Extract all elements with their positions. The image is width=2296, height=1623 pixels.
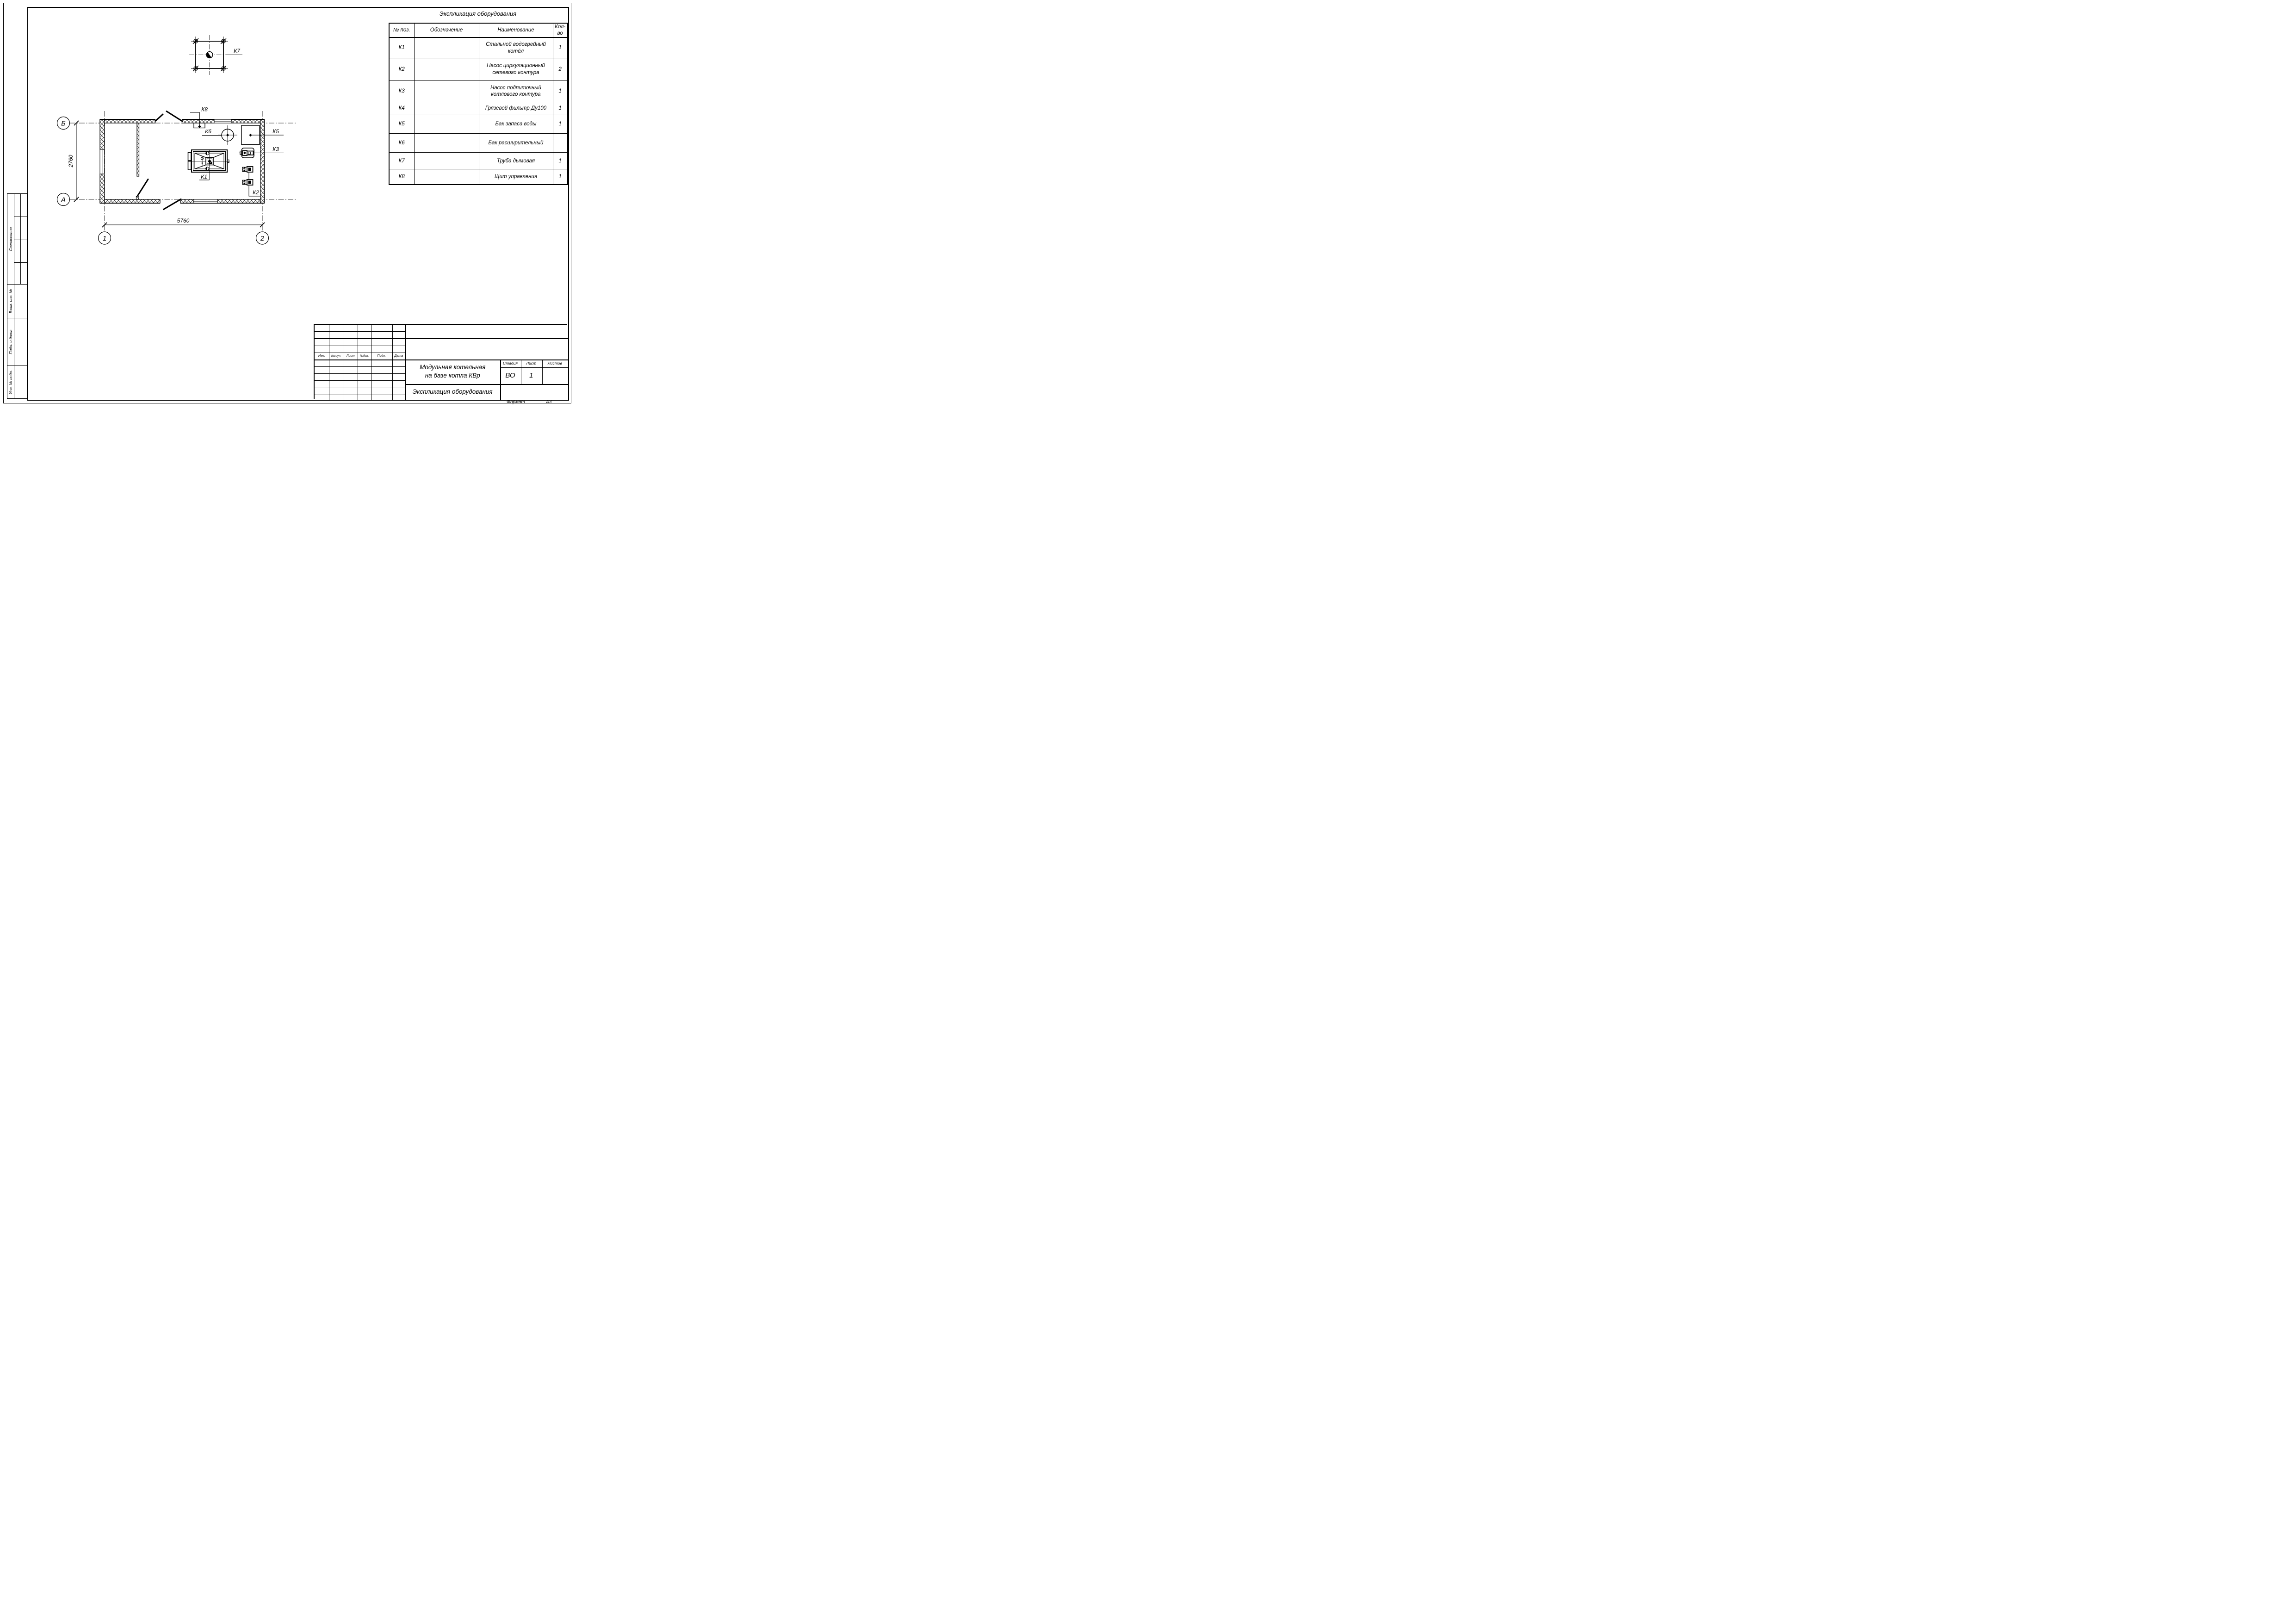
boiler-k1	[188, 150, 230, 180]
door-leaves	[138, 112, 183, 210]
cell-designation	[414, 58, 479, 81]
label-k5: К5	[272, 128, 279, 135]
stamp-inv-podl-label-cell: Инв. № подл.	[7, 366, 14, 398]
stamp-podp-data: Подп. и дата	[7, 318, 27, 366]
label-k8: К8	[201, 106, 208, 113]
sheets-value	[542, 367, 568, 384]
chimney-detail	[189, 35, 242, 75]
drawing-sheet: К7	[0, 0, 574, 406]
cell-qty: 2	[553, 58, 568, 81]
cell-pos: К8	[389, 169, 414, 185]
format-label: Формат	[507, 400, 525, 405]
table-row: К5 Бак запаса воды 1	[389, 114, 568, 134]
cell-name: Труба дымовая	[479, 153, 553, 169]
cell-name: Насос циркуляционный сетевого контура	[479, 58, 553, 81]
table-row: К7 Труба дымовая 1	[389, 153, 568, 169]
door-leaf-top-left	[156, 114, 163, 121]
cell-qty: 1	[553, 81, 568, 102]
cell-qty	[553, 134, 568, 153]
cell-designation	[414, 134, 479, 153]
table-row: К1 Стальной водогрейный котёл 1	[389, 37, 568, 58]
axis-number-1: 1	[103, 235, 106, 242]
stage-label: Стадия	[500, 359, 521, 368]
cell-designation	[414, 37, 479, 58]
cell-name: Грязевой фильтр Ду100	[479, 102, 553, 114]
cell-qty: 1	[553, 153, 568, 169]
stamp-podp-data-label: Подп. и дата	[8, 329, 13, 354]
table-row: К4 Грязевой фильтр Ду100 1	[389, 102, 568, 114]
label-k1: К1	[201, 173, 207, 180]
equipment-table-title: Экспликация оборудования	[389, 10, 567, 17]
cell-name: Бак запаса воды	[479, 114, 553, 134]
sheet-label: Лист	[521, 359, 542, 368]
cell-pos: К7	[389, 153, 414, 169]
rev-header-podp: Подп.	[371, 353, 392, 359]
project-name-line2: на базе котла КВр	[425, 372, 480, 380]
table-row: К6 Бак расширительный	[389, 134, 568, 153]
stamp-inv-podl: Инв. № подл.	[7, 365, 27, 399]
rev-header-izm: Изм.	[315, 353, 329, 359]
pump-k2-upper	[242, 167, 253, 172]
pump-k2-lower	[242, 180, 253, 185]
axis-letter-a: А	[61, 196, 66, 204]
cell-name: Бак расширительный	[479, 134, 553, 153]
cell-qty: 1	[553, 37, 568, 58]
label-k7: К7	[234, 48, 241, 54]
dimension-2760	[74, 121, 79, 202]
boiler-burner-door-icon	[188, 153, 192, 170]
cell-qty: 1	[553, 169, 568, 185]
cell-designation	[414, 169, 479, 185]
dim-text-2760: 2760	[68, 155, 74, 167]
table-row: К2 Насос циркуляционный сетевого контура…	[389, 58, 568, 81]
label-k6: К6	[205, 128, 211, 135]
cell-designation	[414, 114, 479, 134]
col-header-pos: № поз.	[389, 23, 414, 37]
cell-name: Стальной водогрейный котёл	[479, 37, 553, 58]
table-row: К3 Насос подпиточный котлового контура 1	[389, 81, 568, 102]
sheet-value: 1	[521, 367, 542, 384]
stamp-inv-podl-label: Инв. № подл.	[8, 370, 13, 395]
label-k2: К2	[253, 189, 259, 196]
cell-pos: К6	[389, 134, 414, 153]
stamp-approved-label-cell: Согласовано	[7, 194, 14, 284]
sheets-label: Листов	[542, 359, 568, 368]
stamp-vzam-label: Взам. инв. №	[8, 289, 13, 314]
cell-qty: 1	[553, 114, 568, 134]
rev-header-list: Лист	[344, 353, 358, 359]
rev-header-ndok: №док.	[358, 353, 371, 359]
project-name: Модульная котельная на базе котла КВр	[405, 359, 500, 384]
cell-designation	[414, 102, 479, 114]
door-leaf-interior	[138, 180, 149, 196]
cell-designation	[414, 81, 479, 102]
stamp-approved-label: Согласовано	[8, 227, 13, 251]
cell-designation	[414, 153, 479, 169]
walls	[100, 119, 265, 203]
project-name-line1: Модульная котельная	[420, 363, 485, 372]
cell-pos: К4	[389, 102, 414, 114]
cell-pos: К5	[389, 114, 414, 134]
title-block: Изм. Кол.уч. Лист №док. Подп. Дата Модул…	[314, 324, 567, 399]
stage-value: ВО	[500, 367, 521, 384]
stamp-vzam: Взам. инв. №	[7, 284, 27, 318]
rev-header-koluch: Кол.уч.	[329, 353, 344, 359]
col-header-designation: Обозначение	[414, 23, 479, 37]
format-value: А3	[546, 400, 551, 405]
axis-number-2: 2	[260, 235, 265, 242]
rev-header-data: Дата	[392, 353, 406, 359]
cell-pos: К1	[389, 37, 414, 58]
stamp-vzam-label-cell: Взам. инв. №	[7, 285, 14, 318]
door-leaf-bottom-exterior	[164, 199, 181, 210]
cell-pos: К2	[389, 58, 414, 81]
axis-markers	[57, 117, 269, 245]
dim-text-5760: 5760	[177, 217, 190, 224]
cell-pos: К3	[389, 81, 414, 102]
label-k3: К3	[272, 146, 279, 153]
cell-name: Насос подпиточный котлового контура	[479, 81, 553, 102]
doc-title: Экспликация оборудования	[405, 384, 500, 400]
flue-pipe-icon	[205, 52, 213, 59]
col-header-name: Наименование	[479, 23, 553, 37]
stamp-podp-data-label-cell: Подп. и дата	[7, 318, 14, 365]
cell-name: Щит управления	[479, 169, 553, 185]
table-row: К8 Щит управления 1	[389, 169, 568, 185]
equipment-table-header-row: № поз. Обозначение Наименование Кол-во	[389, 23, 568, 37]
axis-letter-b: Б	[61, 120, 66, 128]
stamp-approved: Согласовано	[7, 193, 27, 285]
wall-face-lines	[100, 119, 265, 203]
equipment-table: № поз. Обозначение Наименование Кол-во К…	[389, 23, 568, 185]
door-leaf-top-right	[167, 112, 182, 122]
cell-qty: 1	[553, 102, 568, 114]
col-header-qty: Кол-во	[553, 23, 568, 37]
